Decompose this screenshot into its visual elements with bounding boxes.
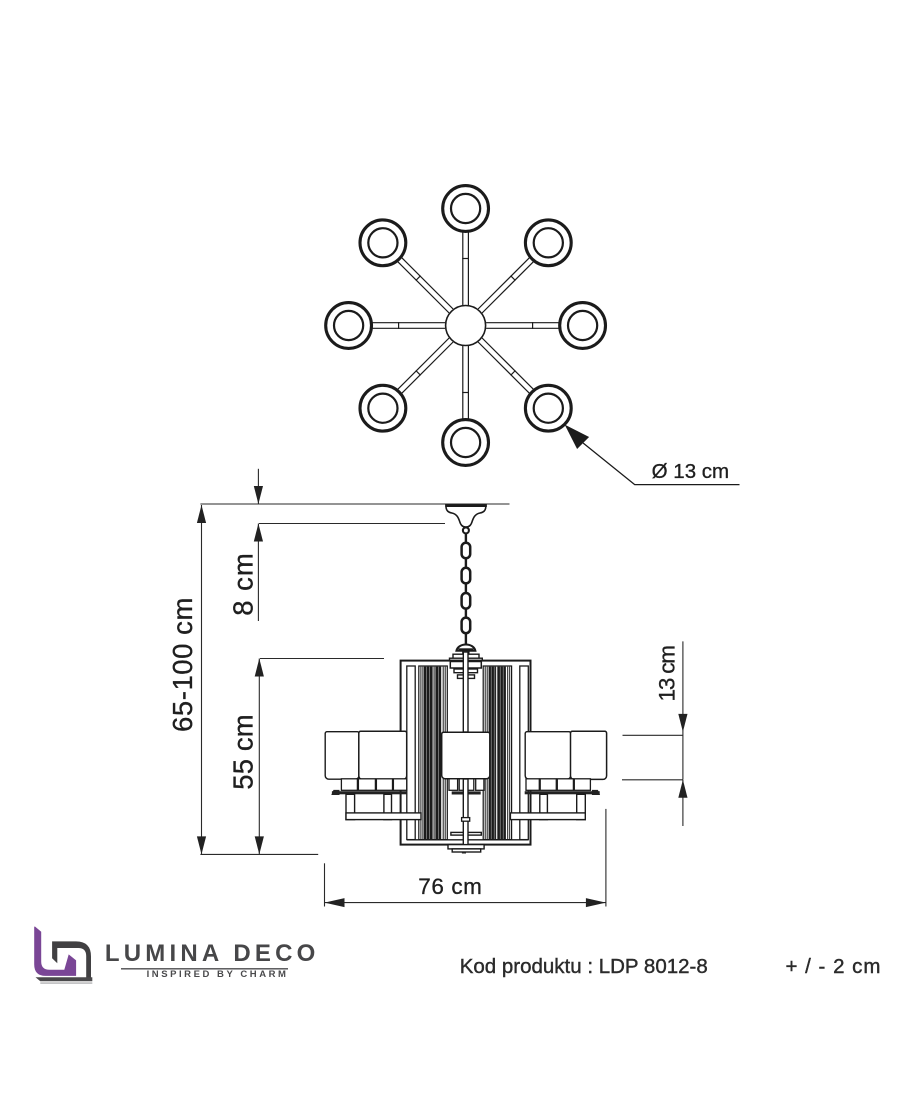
svg-text:76 cm: 76 cm xyxy=(418,874,482,899)
svg-text:Ø 13 cm: Ø 13 cm xyxy=(652,460,729,483)
svg-text:13 cm: 13 cm xyxy=(655,646,680,702)
svg-text:55 cm: 55 cm xyxy=(228,714,259,789)
svg-text:65-100 cm: 65-100 cm xyxy=(167,597,198,732)
svg-text:8 cm: 8 cm xyxy=(228,552,259,615)
